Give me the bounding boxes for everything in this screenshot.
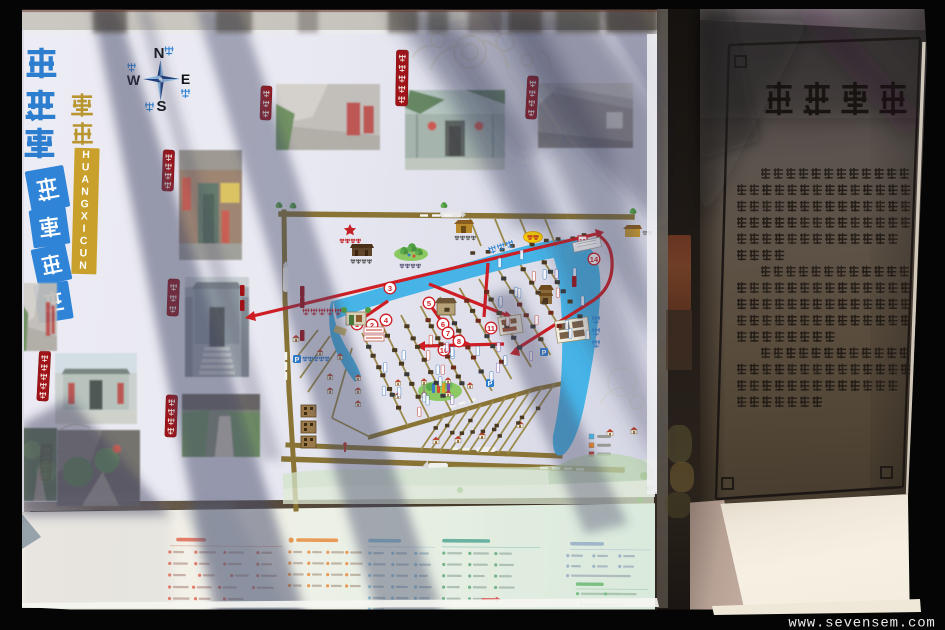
svg-text:11: 11 — [487, 324, 495, 333]
svg-text:7: 7 — [446, 329, 450, 338]
svg-text:C: C — [80, 235, 88, 247]
svg-text:U: U — [82, 161, 90, 173]
svg-text:G: G — [80, 198, 88, 210]
svg-text:A: A — [81, 174, 89, 186]
svg-text:N: N — [81, 186, 89, 198]
svg-text:H: H — [82, 149, 90, 161]
svg-text:N: N — [79, 260, 87, 272]
svg-text:I: I — [82, 223, 85, 235]
svg-text:www.sevensem.com: www.sevensem.com — [788, 616, 935, 630]
svg-text:X: X — [81, 210, 88, 222]
svg-text:P: P — [295, 357, 300, 364]
svg-text:P: P — [488, 381, 493, 388]
svg-text:3: 3 — [388, 284, 392, 293]
svg-text:8: 8 — [457, 337, 461, 346]
svg-text:5: 5 — [427, 299, 431, 308]
svg-text:E: E — [181, 71, 190, 87]
svg-text:U: U — [79, 247, 87, 259]
